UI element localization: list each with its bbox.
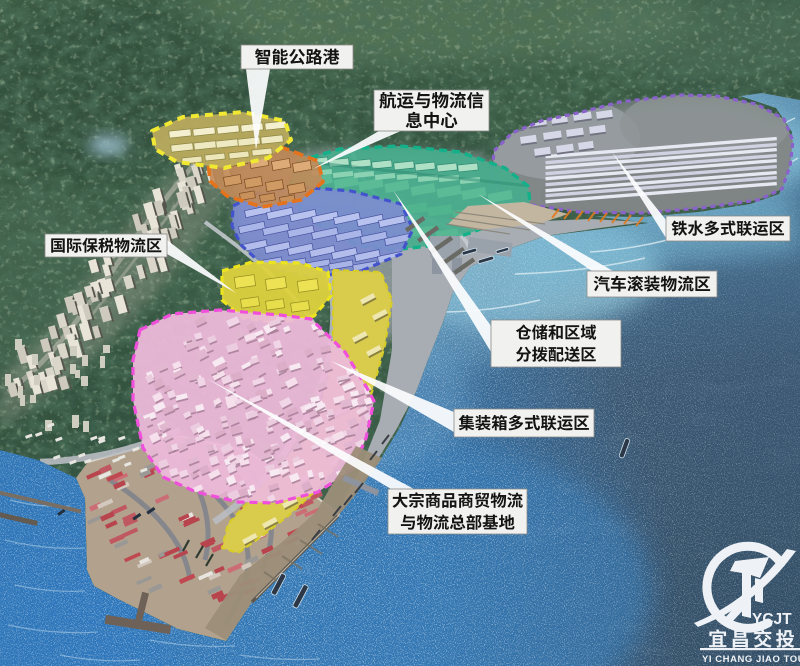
svg-text:YI CHANG JIAO TOU: YI CHANG JIAO TOU xyxy=(702,654,800,665)
svg-text:YCJT: YCJT xyxy=(752,611,792,628)
